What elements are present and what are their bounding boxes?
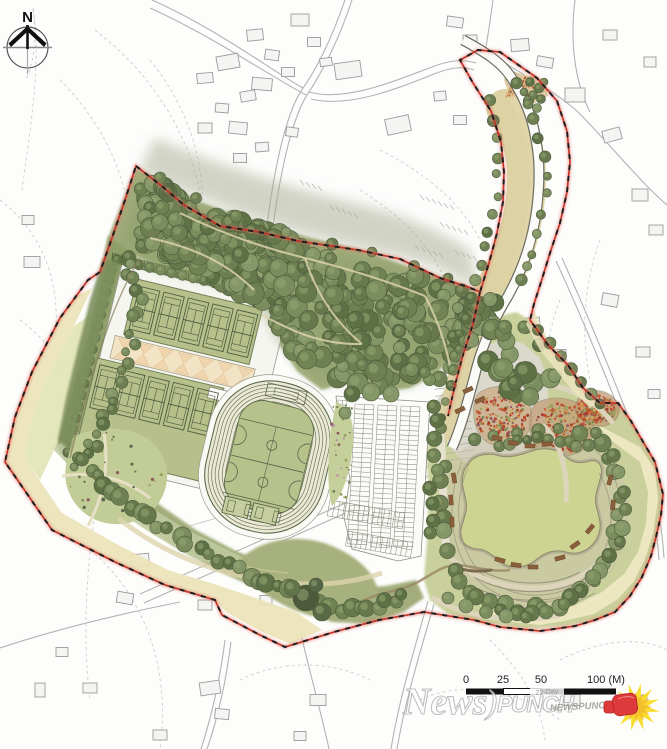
svg-text:100 (M): 100 (M): [587, 674, 625, 686]
svg-text:N: N: [22, 9, 33, 26]
svg-text:): ): [484, 684, 497, 721]
svg-text:50: 50: [535, 674, 547, 686]
svg-text:News: News: [402, 681, 487, 723]
svg-text:25: 25: [497, 674, 509, 686]
